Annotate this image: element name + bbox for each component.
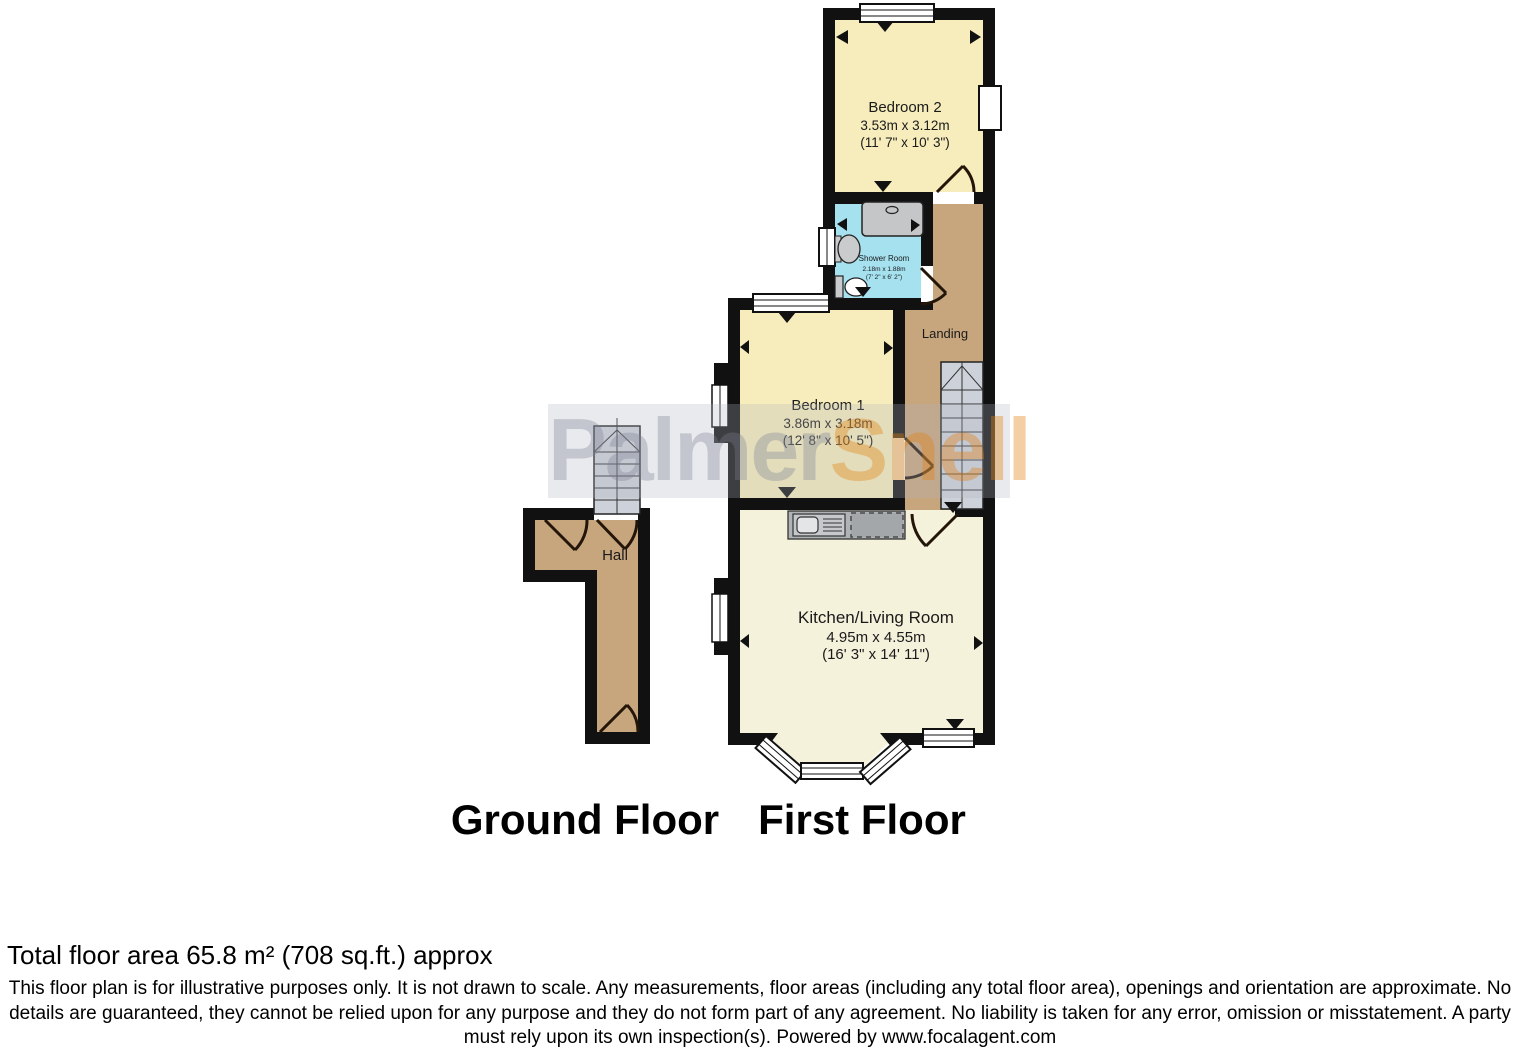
floorplan-page: Bedroom 2 3.53m x 3.12m (11' 7" x 10' 3"… <box>0 0 1520 1048</box>
first-floor-plan: Bedroom 2 3.53m x 3.12m (11' 7" x 10' 3"… <box>712 4 1001 784</box>
bedroom1-window <box>753 294 829 312</box>
stairs-ground-floor <box>594 418 640 514</box>
disclaimer-line-2: details are guaranteed, they cannot be r… <box>0 1002 1520 1027</box>
appliance-space <box>851 513 903 537</box>
kitchen-rear-window <box>923 729 974 747</box>
bedroom1-side-window <box>712 385 728 427</box>
shower-window <box>819 228 835 266</box>
ground-floor-label: Ground Floor <box>450 796 720 845</box>
shower-dim-m: 2.18m x 1.88m <box>863 266 906 273</box>
bay-window-center <box>801 763 863 779</box>
bedroom2-dim-ft: (11' 7" x 10' 3") <box>860 135 950 150</box>
bedroom2-dim-m: 3.53m x 3.12m <box>860 118 949 133</box>
sink-icon <box>838 235 860 263</box>
disclaimer-line-1: This floor plan is for illustrative purp… <box>0 977 1520 1002</box>
disclaimer-line-3: must rely upon its own inspection(s). Po… <box>0 1026 1520 1048</box>
bedroom1-label: Bedroom 1 <box>791 397 864 414</box>
bedroom2-window <box>860 4 934 22</box>
kitchen-dim-ft: (16' 3" x 14' 11") <box>822 646 930 663</box>
kitchen-dim-m: 4.95m x 4.55m <box>826 629 925 646</box>
bedroom1-dim-ft: (12' 8" x 10' 5") <box>783 433 874 448</box>
bedroom2-label: Bedroom 2 <box>868 99 941 116</box>
shower-dim-ft: (7' 2" x 6' 2") <box>866 274 902 281</box>
bedroom1-dim-m: 3.86m x 3.18m <box>783 416 872 431</box>
bedroom2-recess-window <box>979 86 1001 130</box>
kitchen-label: Kitchen/Living Room <box>798 608 954 627</box>
footer: Total floor area 65.8 m² (708 sq.ft.) ap… <box>0 940 1520 1048</box>
landing-label: Landing <box>922 326 968 341</box>
kitchen-sink-icon <box>797 517 818 533</box>
shower-label: Shower Room <box>859 254 910 263</box>
first-floor-label: First Floor <box>732 796 992 845</box>
hall-label: Hall <box>602 547 628 564</box>
toilet-cistern-icon <box>835 276 843 298</box>
stairs-first-floor <box>941 362 983 509</box>
floorplan-drawing: Bedroom 2 3.53m x 3.12m (11' 7" x 10' 3"… <box>0 0 1520 930</box>
kitchen-side-window <box>712 594 728 642</box>
ground-floor-plan: Hall <box>523 418 650 744</box>
kitchen-fixtures <box>788 511 905 539</box>
disclaimer-text: This floor plan is for illustrative purp… <box>0 977 1520 1048</box>
total-area-text: Total floor area 65.8 m² (708 sq.ft.) ap… <box>0 940 1520 971</box>
